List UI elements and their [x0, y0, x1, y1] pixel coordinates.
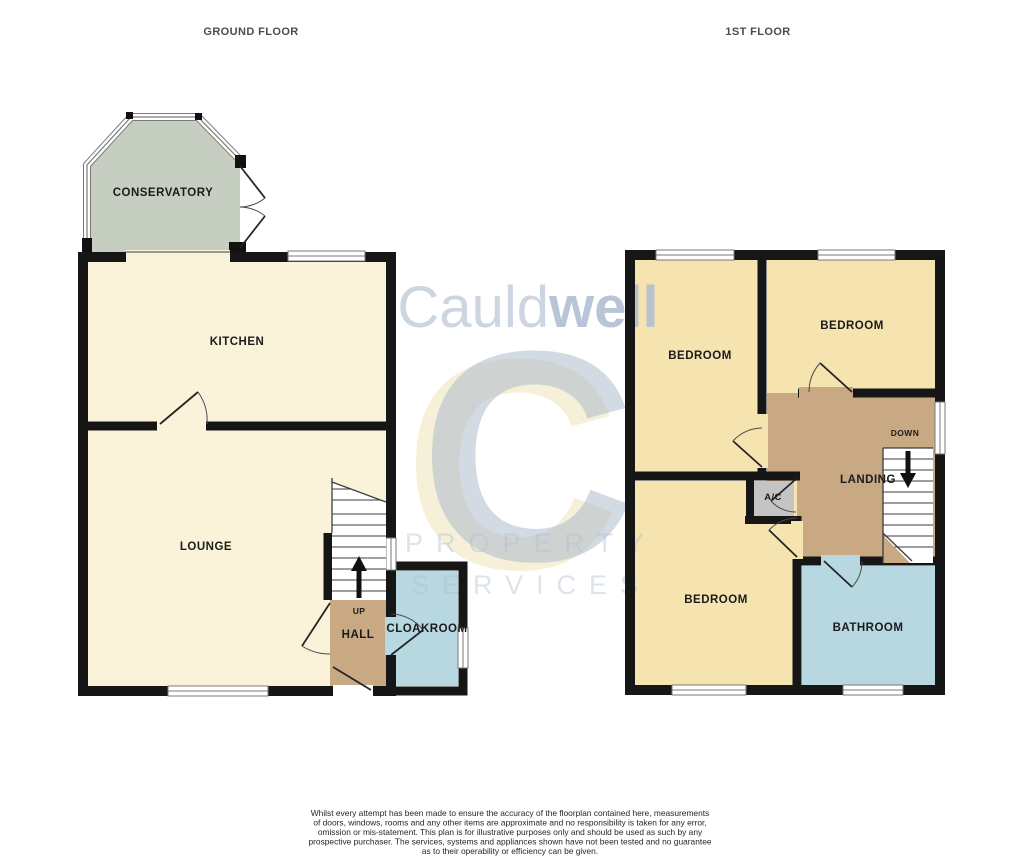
room-label-lounge: LOUNGE — [180, 541, 232, 553]
conservatory-door-arc-bottom — [240, 207, 265, 216]
first-floor-title: 1ST FLOOR — [725, 26, 790, 38]
disclaimer-line-3: omission or mis-statement. This plan is … — [318, 827, 703, 837]
room-label-ac: A/C — [764, 492, 782, 503]
room-label-hall: HALL — [342, 629, 375, 641]
conservatory-door-leaf-top — [240, 166, 265, 198]
stairs-up — [332, 478, 386, 600]
floorplan-page: C C Cauldwell PROPERTY SERVICES — [0, 0, 1024, 857]
stairs-down — [883, 448, 933, 563]
ground-floor-title: GROUND FLOOR — [203, 26, 298, 38]
room-label-bedroom-top-right: BEDROOM — [820, 320, 884, 332]
room-label-bedroom-bottom: BEDROOM — [684, 594, 748, 606]
conservatory-door-arc-top — [240, 198, 265, 207]
room-label-kitchen: KITCHEN — [210, 336, 265, 348]
lounge-window — [168, 686, 268, 696]
room-label-landing: LANDING — [840, 474, 896, 486]
room-label-cloakroom: CLOAKROOM — [386, 623, 467, 635]
room-label-bedroom-top-left: BEDROOM — [668, 350, 732, 362]
watermark-brand-prefix: Cauld — [397, 275, 549, 340]
watermark-property: PROPERTY — [405, 528, 657, 558]
kitchen-window — [288, 251, 365, 261]
disclaimer-line-4: prospective purchaser. The services, sys… — [308, 837, 711, 847]
watermark-brand-suffix: well — [548, 275, 659, 340]
bedroom-tr-window — [818, 250, 895, 260]
disclaimer-line-2: of doors, windows, rooms and any other i… — [313, 818, 706, 828]
watermark-brand: Cauldwell — [397, 275, 658, 340]
landing-window — [935, 402, 945, 454]
bathroom-window — [843, 685, 903, 695]
bedroom-tl-window — [656, 250, 734, 260]
disclaimer: Whilst every attempt has been made to en… — [308, 808, 711, 857]
stairwell-window — [386, 538, 396, 570]
room-label-bathroom: BATHROOM — [833, 622, 904, 634]
conservatory-door-leaf-bottom — [240, 216, 265, 248]
disclaimer-line-1: Whilst every attempt has been made to en… — [311, 808, 710, 818]
floorplan-image: C C Cauldwell PROPERTY SERVICES — [0, 0, 1024, 857]
bedroom-bottom-window — [672, 685, 746, 695]
stairs-down-label: DOWN — [891, 428, 920, 438]
room-label-conservatory: CONSERVATORY — [113, 187, 214, 199]
disclaimer-line-5: as to their operability or efficiency ca… — [422, 846, 598, 856]
stairs-up-label: UP — [353, 606, 366, 616]
floor-titles: GROUND FLOOR 1ST FLOOR — [203, 26, 790, 38]
watermark-services: SERVICES — [411, 570, 651, 600]
watermark: C C Cauldwell PROPERTY SERVICES — [397, 275, 658, 632]
